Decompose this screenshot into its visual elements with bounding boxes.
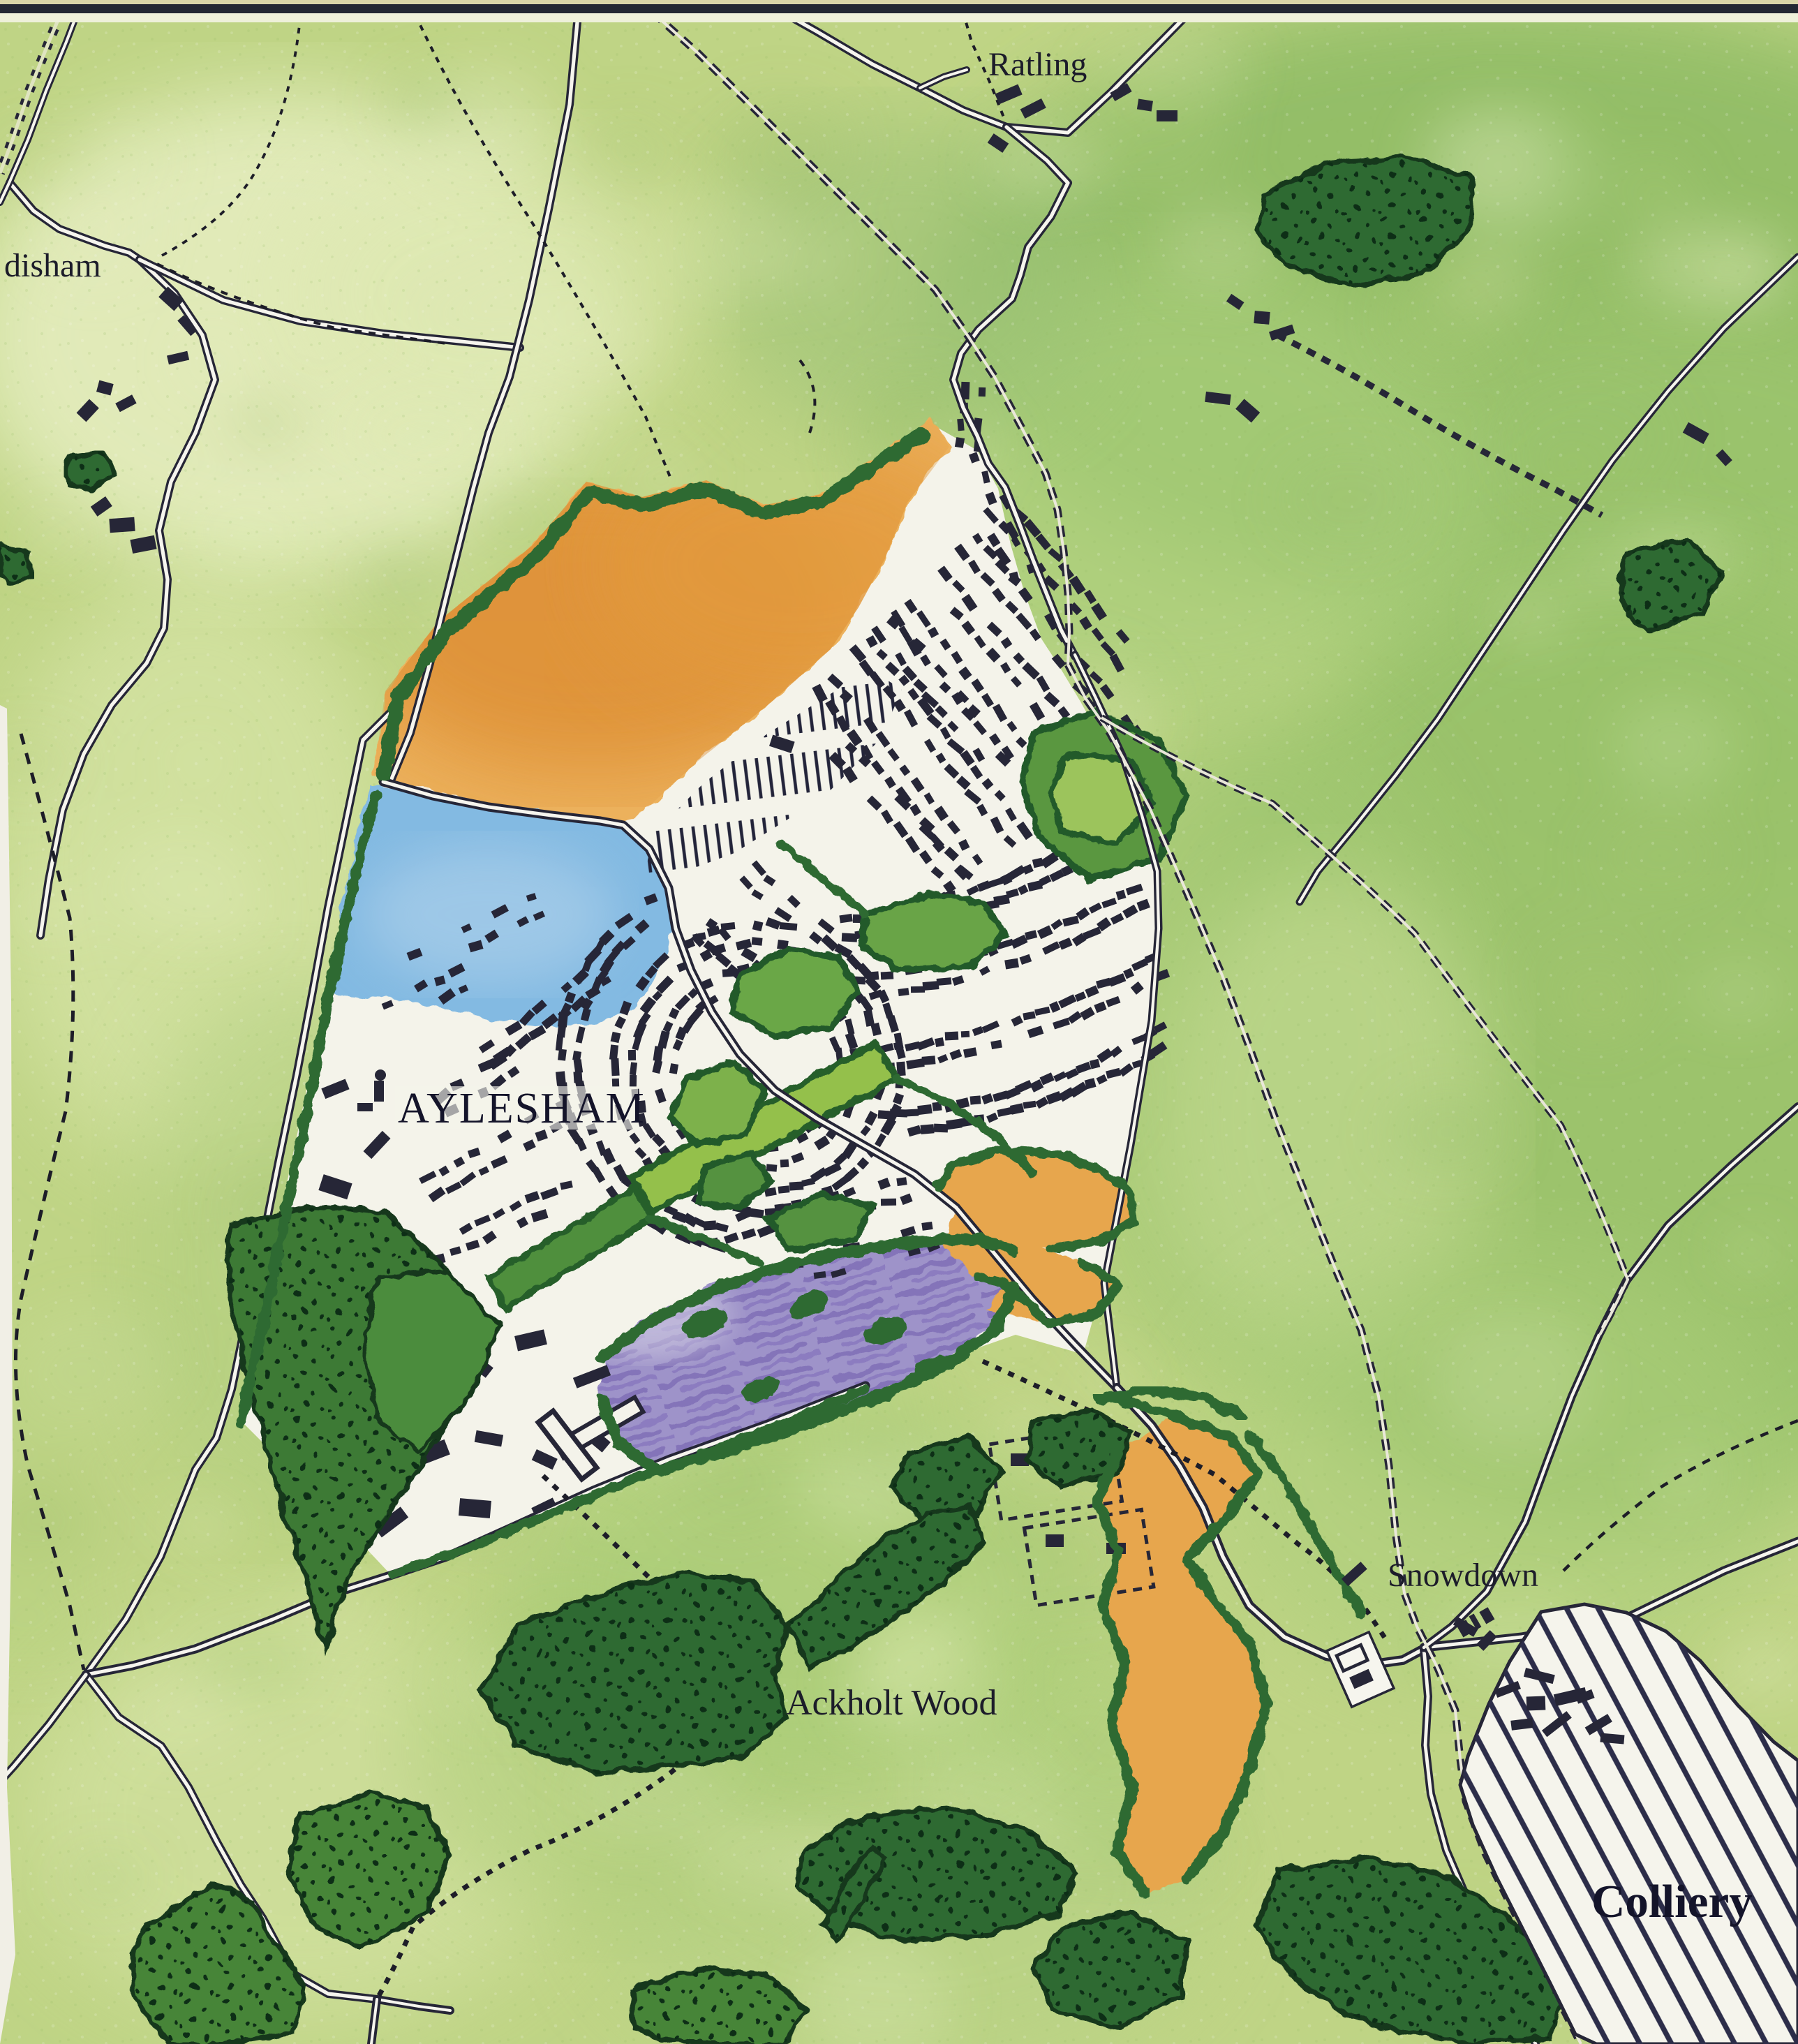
svg-text:Colliery: Colliery (1591, 1876, 1753, 1927)
svg-text:Ratling: Ratling (988, 46, 1087, 83)
svg-text:AYLESHAM: AYLESHAM (398, 1085, 646, 1132)
svg-text:Snowdown: Snowdown (1388, 1557, 1538, 1594)
svg-text:Ackholt Wood: Ackholt Wood (786, 1683, 997, 1723)
svg-text:disham: disham (4, 247, 101, 284)
